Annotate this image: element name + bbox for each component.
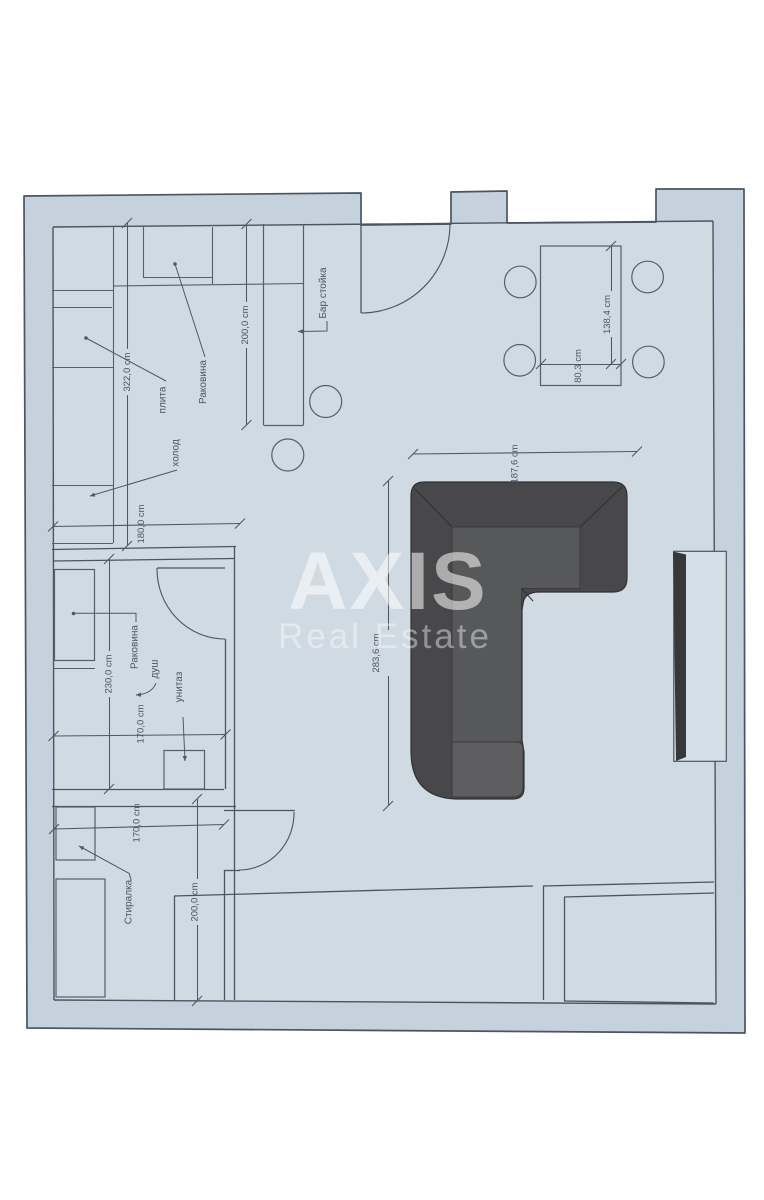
svg-text:Стиралка: Стиралка	[124, 879, 135, 924]
svg-text:Раковина: Раковина	[130, 625, 141, 669]
svg-text:170,0 cm: 170,0 cm	[132, 803, 143, 842]
svg-text:187,6 cm: 187,6 cm	[510, 444, 521, 483]
svg-text:AXIS: AXIS	[288, 536, 487, 627]
svg-text:230,0 cm: 230,0 cm	[104, 654, 115, 693]
svg-text:плита: плита	[157, 386, 168, 413]
svg-text:200,0 cm: 200,0 cm	[240, 305, 251, 344]
svg-text:Real Estate: Real Estate	[278, 617, 492, 656]
svg-text:душ: душ	[150, 660, 161, 679]
svg-text:холод: холод	[171, 439, 182, 467]
svg-text:80,3 cm: 80,3 cm	[573, 349, 584, 383]
svg-text:Бар стойка: Бар стойка	[318, 267, 329, 319]
svg-text:Раковина: Раковина	[198, 360, 209, 404]
svg-text:180,0 cm: 180,0 cm	[136, 504, 147, 543]
svg-text:200,0 cm: 200,0 cm	[190, 882, 201, 921]
svg-text:унитаз: унитаз	[174, 671, 185, 702]
svg-text:138,4 cm: 138,4 cm	[602, 295, 613, 334]
svg-text:170,0 cm: 170,0 cm	[136, 704, 147, 743]
